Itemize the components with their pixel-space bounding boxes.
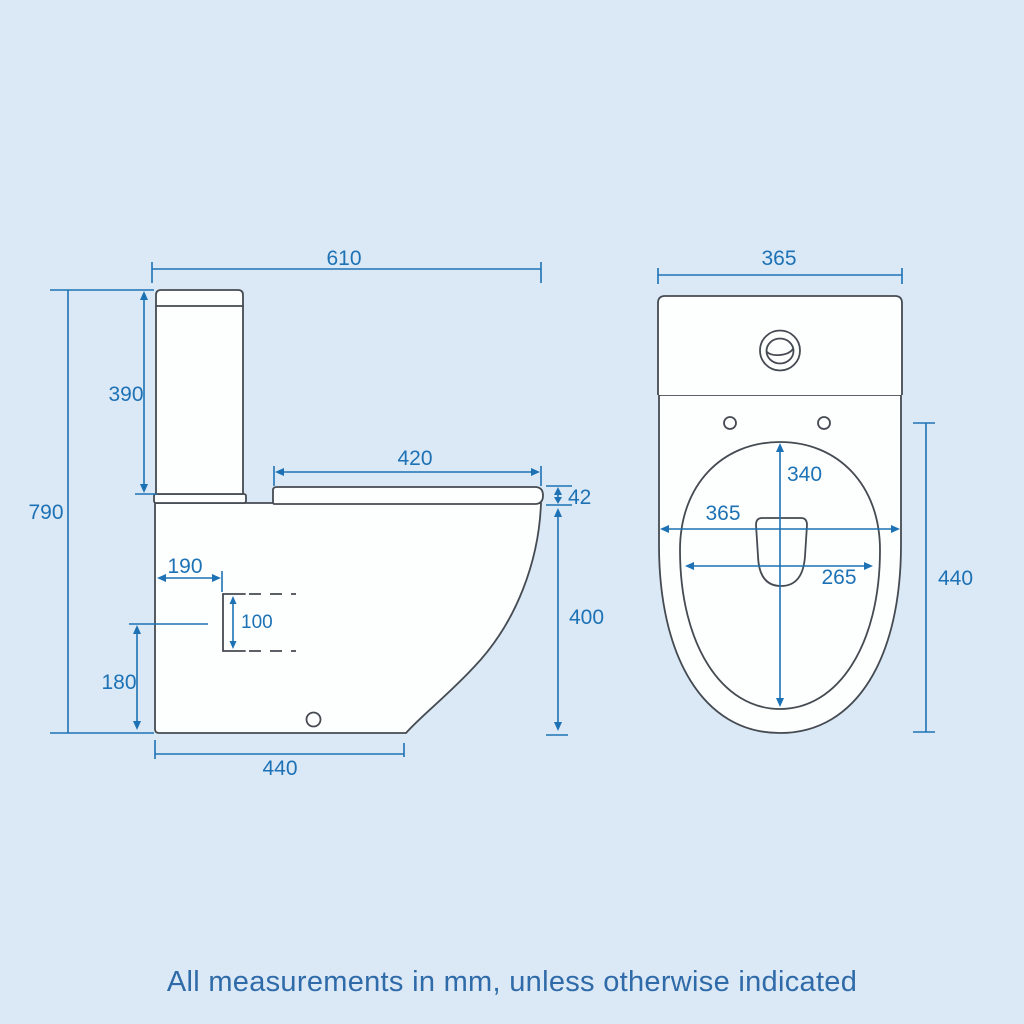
- toilet-dimension-diagram: 610 790 390 420: [0, 0, 1024, 1024]
- dim-seat-length: 420: [274, 447, 541, 486]
- dim-label-seat-thickness: 42: [568, 486, 591, 509]
- dim-overall-width: 365: [658, 247, 902, 284]
- flush-button-inner-icon: [767, 339, 794, 364]
- pan-body-outline: [155, 503, 541, 733]
- dim-label-outlet-size: 100: [241, 612, 273, 633]
- dim-label-seat-length: 420: [397, 447, 432, 470]
- dim-label-bowl-length: 340: [787, 463, 822, 486]
- front-view: 365 340 365 265 440: [658, 247, 973, 733]
- dim-overall-height: 790: [28, 290, 68, 733]
- cistern-lip: [154, 494, 246, 503]
- seat-profile: [273, 487, 543, 504]
- diagram-canvas: 610 790 390 420: [0, 0, 1024, 1024]
- dim-overall-depth: 610: [152, 247, 541, 283]
- dim-label-outlet-height: 180: [101, 671, 136, 694]
- dim-label-overall-height: 790: [28, 501, 63, 524]
- dim-label-overall-depth: 610: [326, 247, 361, 270]
- dim-label-pan-height: 440: [938, 567, 973, 590]
- dim-label-overall-width: 365: [761, 247, 796, 270]
- hinge-hole-right: [818, 417, 830, 429]
- measurement-note: All measurements in mm, unless otherwise…: [0, 966, 1024, 999]
- dim-bowl-height: 400: [546, 508, 604, 735]
- dim-seat-thickness: 42: [546, 486, 591, 509]
- dim-base-depth: 440: [155, 740, 404, 780]
- side-view: 610 790 390 420: [28, 247, 604, 780]
- cistern-outline: [156, 290, 243, 494]
- dim-label-cistern-height: 390: [108, 383, 143, 406]
- hinge-hole-left: [724, 417, 736, 429]
- dim-pan-height: 440: [913, 423, 973, 732]
- dim-cistern-height: 390: [108, 291, 157, 494]
- dim-label-outlet-setback: 190: [167, 555, 202, 578]
- dim-label-bowl-width: 265: [821, 566, 856, 589]
- fixing-hole: [307, 713, 321, 727]
- dim-label-bowl-height: 400: [569, 606, 604, 629]
- dim-label-base-depth: 440: [262, 757, 297, 780]
- dim-label-rim-width: 365: [705, 502, 740, 525]
